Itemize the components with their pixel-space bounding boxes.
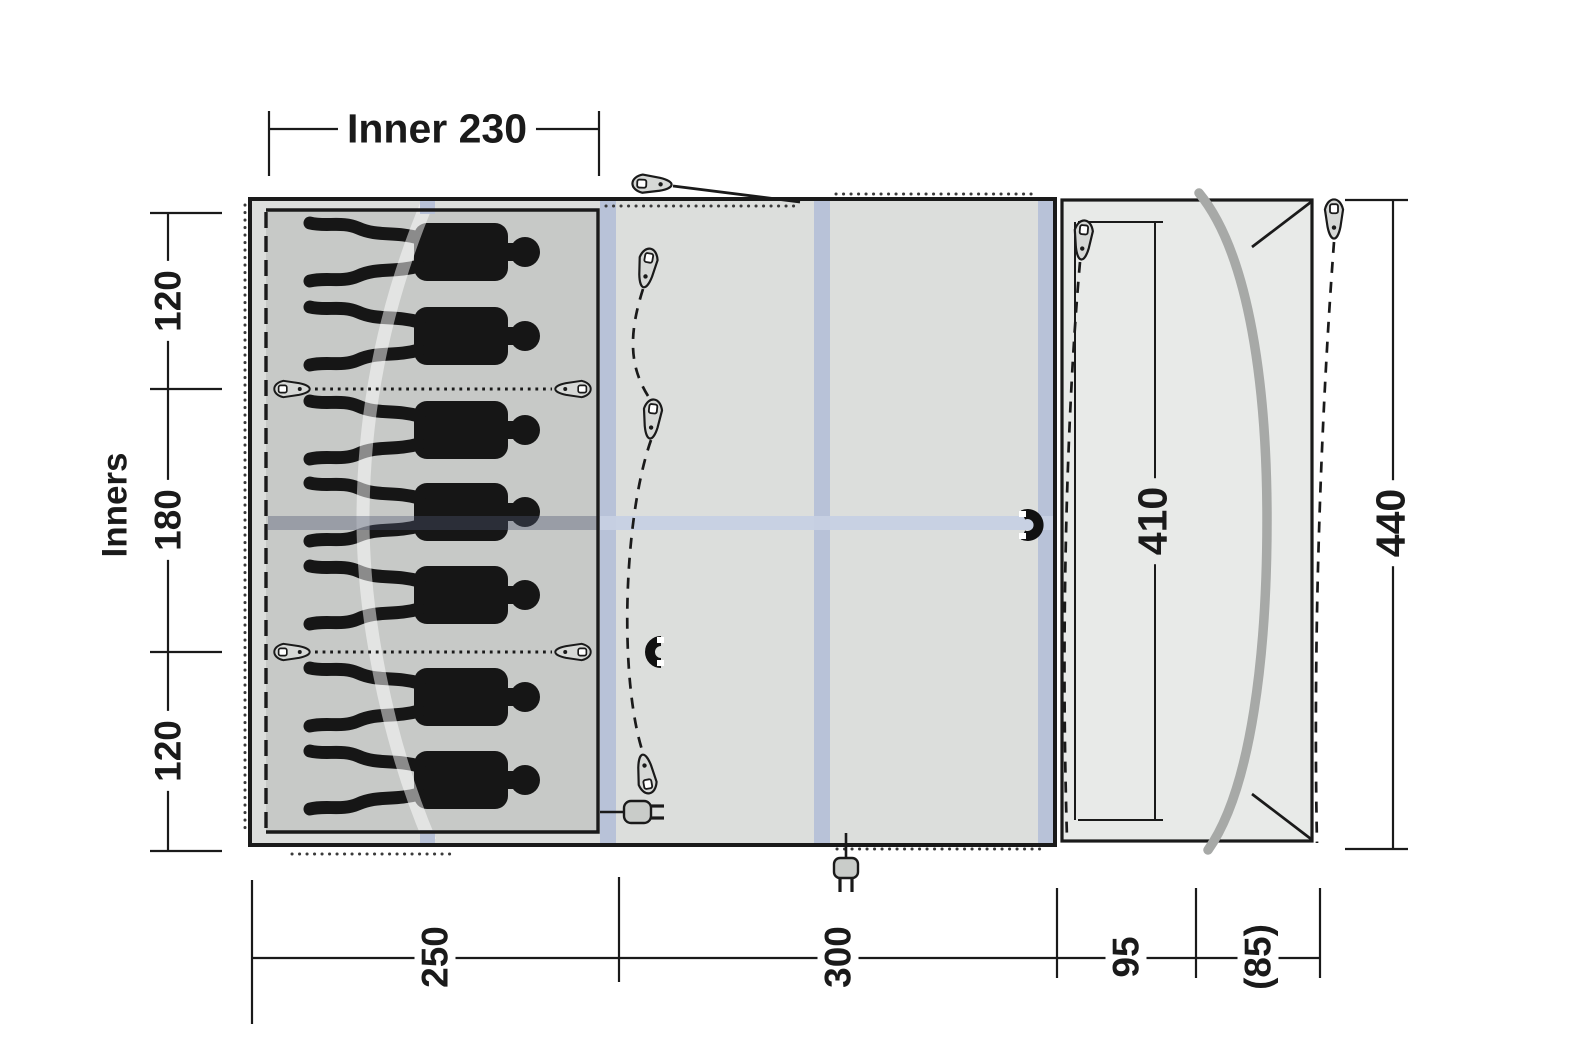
dimension-label-bottom-sleeping: 250 <box>415 917 456 997</box>
dimension-label-porch-depth: 410 <box>1131 478 1176 564</box>
guy-peg-icon <box>1325 199 1343 238</box>
roof-band-living <box>598 516 1055 530</box>
roof-band-inner <box>268 516 598 530</box>
dimension-label-left-top: 120 <box>148 261 189 341</box>
porch-outline <box>1062 200 1312 841</box>
dimension-label-left-mid: 180 <box>148 480 189 560</box>
air-tube-stub <box>420 200 435 214</box>
dimension-label-left-bottom: 120 <box>148 711 189 791</box>
tent-floorplan-diagram: Inner 230 120 180 120 Inners 410 440 250… <box>0 0 1575 1050</box>
axis-label-inners: Inners <box>98 452 133 557</box>
floorplan-canvas <box>0 0 1575 1050</box>
dimension-label-bottom-living: 300 <box>818 917 859 997</box>
guy-line-dashed <box>1316 242 1334 843</box>
guy-peg-icon <box>632 174 672 193</box>
dimension-label-total-depth: 440 <box>1369 480 1414 566</box>
porch-section <box>1062 193 1312 850</box>
dimension-label-bottom-canopy: (85) <box>1238 915 1279 999</box>
dimension-label-bottom-front: 95 <box>1106 927 1147 986</box>
dimension-label-inner-width: Inner 230 <box>338 107 536 152</box>
